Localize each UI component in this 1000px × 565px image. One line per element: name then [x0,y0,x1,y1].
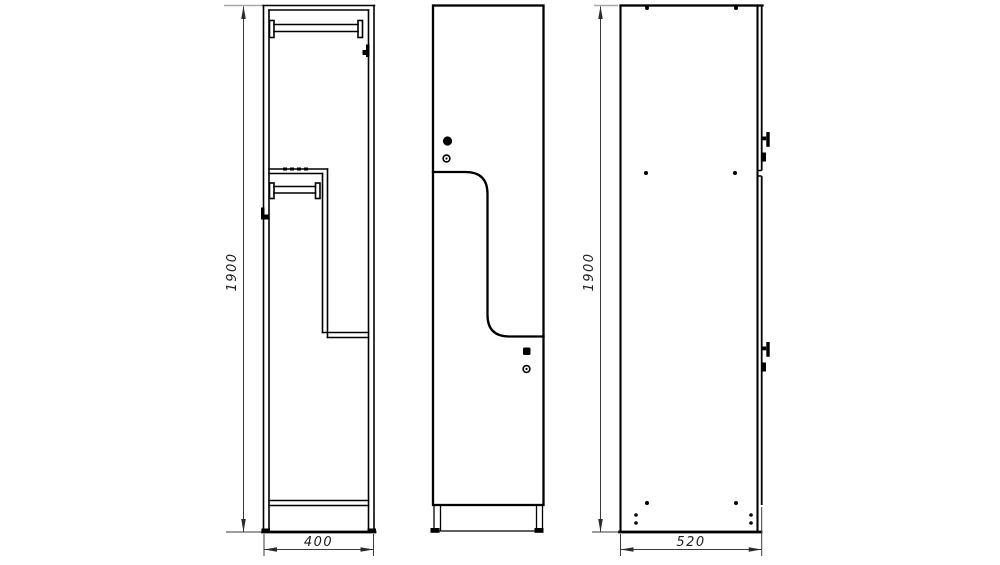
plinth-front [431,505,544,533]
z-divider [323,169,369,338]
lock-upper-icon [443,136,452,162]
side-view [620,6,770,533]
wall-hook-right-icon [363,45,370,58]
front-door-view [431,6,544,533]
latch-bottom-icon [762,363,767,372]
dimension-height-side: 1900 [582,6,618,533]
front-section-view [261,6,376,534]
bottom-shelf [269,501,369,506]
wall-hook-left-icon [261,208,269,220]
locker-drawing: 1900 400 1900 520 [0,0,1000,565]
mid-hanger-rod [270,183,321,199]
lock-lower-icon [523,348,531,373]
dim-label-height-front: 1900 [225,252,240,291]
dim-label-depth-side: 520 [676,535,705,550]
dimension-width-front: 400 [264,534,374,556]
carcass-walls [263,6,376,533]
dim-label-height-side: 1900 [582,252,597,291]
side-panel-outline [621,6,758,533]
technical-drawing-canvas: 1900 400 1900 520 [0,0,1000,565]
dim-label-width-front: 400 [304,535,333,550]
top-hanger-rod [270,21,363,38]
hinge-bottom-icon [762,342,770,357]
dimension-height-front: 1900 [224,6,262,533]
hinge-top-icon [762,132,770,147]
door-split-line [433,172,544,337]
mid-shelf [269,169,328,174]
latch-top-icon [762,153,767,162]
